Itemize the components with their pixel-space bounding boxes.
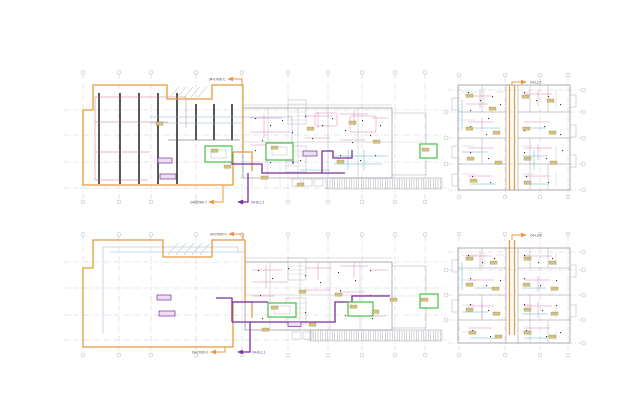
ref-label: 04-L2.5 (531, 80, 542, 84)
section-markers: 04-L2.5 (512, 80, 542, 85)
ref-label: 04-07000 C (209, 77, 226, 81)
arrow-right-icon (521, 80, 527, 84)
section-markers: 04-07000 V 04-07000 J 04-KL1.1 · ·· ····… (188, 232, 265, 356)
note-text: · ·· ····· ·· (188, 351, 197, 353)
corridor-highlight (510, 85, 515, 190)
wing-walls (245, 258, 442, 341)
ref-label: 04-07000 V (210, 232, 227, 236)
wiring-pink (250, 110, 388, 145)
note-text: ··· ···· (513, 351, 519, 353)
route-purple (158, 150, 352, 202)
corridor-highlight (510, 240, 515, 335)
arrow-left-icon (227, 77, 233, 81)
ramp-hatch (168, 243, 210, 255)
wiring-blue (103, 247, 245, 333)
building-outline (83, 240, 252, 347)
arrow-left-icon (208, 200, 214, 204)
arrow-right-icon (521, 233, 527, 237)
section-markers: 04-L2.5 ·· ····· ··· ··· ···· (512, 233, 542, 353)
plan-basement-2: 04-07000 V 04-07000 J 04-KL1.1 · ·· ····… (83, 232, 442, 356)
note-text: ·· ····· ··· (512, 348, 520, 350)
cad-sheet: 04-07000 C 04-07000 J 04-KL1.1 (0, 0, 640, 420)
device-dots (468, 92, 563, 183)
parking-stalls (99, 93, 240, 184)
plan-basement-1: 04-07000 C 04-07000 J 04-KL1.1 (83, 77, 442, 205)
note-text: ···· ·· ·· (190, 354, 197, 356)
hatched-band (310, 330, 442, 341)
ref-label: 04-L2.5 (531, 233, 542, 237)
arrow-left-icon (228, 232, 234, 236)
arrow-left-icon (210, 350, 216, 354)
equipment-tags (466, 94, 557, 184)
wiring-red (95, 97, 186, 180)
plan-tower-2: 04-L2.5 ·· ····· ··· ··· ···· (452, 233, 576, 353)
hatched-band (326, 178, 442, 189)
ref-label: 04-07000 J (191, 200, 207, 204)
arrow-left-icon (237, 200, 243, 204)
equipment-tags (466, 257, 558, 338)
ref-label: 04-KL1.1 (253, 350, 266, 354)
grid-layer (64, 71, 586, 358)
arrow-left-icon (237, 350, 243, 354)
ref-label: 04-KL1.1 (252, 200, 265, 204)
ramp-hatch (170, 87, 207, 97)
plan-tower-1: 04-L2.5 (452, 80, 576, 190)
